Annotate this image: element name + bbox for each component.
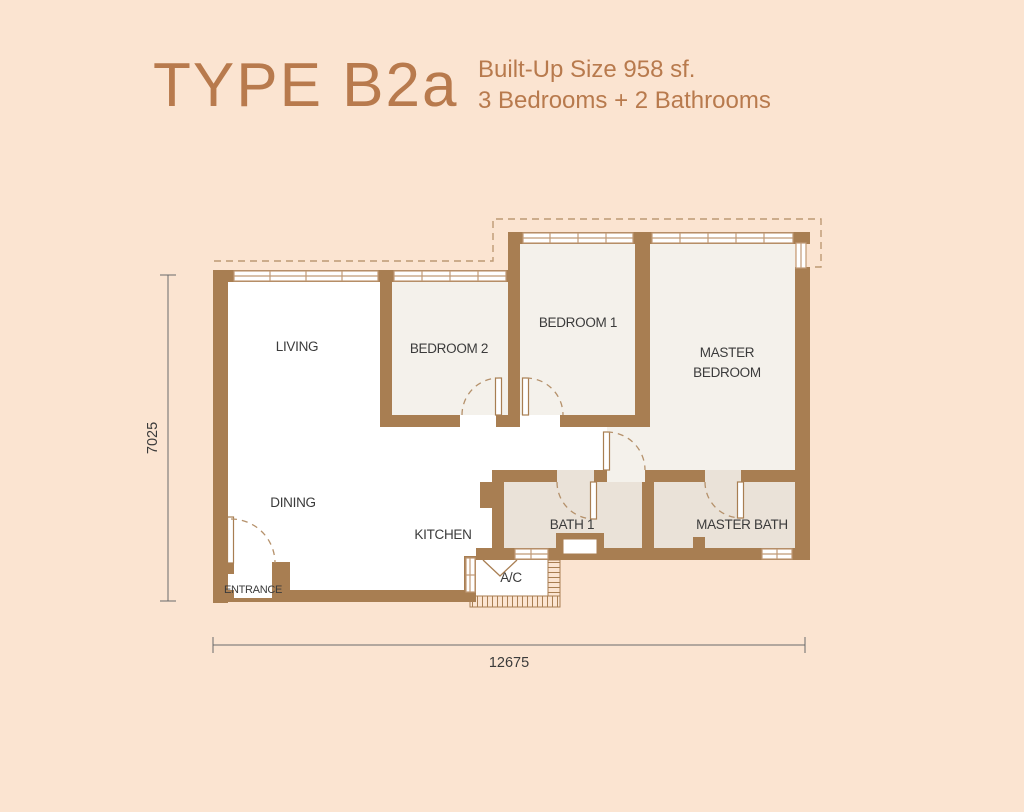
bath1-duct (563, 539, 597, 554)
builtup-size-text: Built-Up Size 958 sf. (478, 54, 771, 85)
floor-plan-svg: 7025 12675 LIVING DINING KITCHEN BEDROOM… (0, 0, 1024, 812)
bedroom2-window (394, 271, 506, 281)
room-label-bedroom2: BEDROOM 2 (410, 341, 488, 356)
ac-vent-window (515, 549, 548, 559)
master-bath-floor (654, 482, 795, 548)
bath1-door-leaf (591, 482, 597, 519)
page-subtitle: Built-Up Size 958 sf. 3 Bedrooms + 2 Bat… (478, 54, 771, 116)
bedrooms-bathrooms-text: 3 Bedrooms + 2 Bathrooms (478, 85, 771, 116)
kitchen-floor-lower (380, 556, 464, 590)
floor-plan-page: TYPE B2a Built-Up Size 958 sf. 3 Bedroom… (0, 0, 1024, 812)
ac-louvre-right (548, 560, 560, 596)
master-bedroom-door-leaf (604, 432, 610, 470)
room-label-living: LIVING (276, 339, 318, 354)
room-label-master-line2: BEDROOM (693, 365, 761, 380)
bedroom1-window (523, 233, 633, 243)
page-title: TYPE B2a (153, 50, 458, 121)
room-label-dining: DINING (270, 495, 315, 510)
room-label-entrance: ENTRANCE (224, 584, 282, 596)
room-label-bedroom1: BEDROOM 1 (539, 315, 617, 330)
width-dimension-label: 12675 (489, 655, 529, 671)
bedroom2-door-leaf (496, 378, 502, 415)
dimension-height: 7025 (145, 275, 176, 601)
master-bath-threshold (705, 470, 741, 482)
living-dining-floor (228, 282, 380, 590)
kitchen-window (466, 558, 475, 592)
bedroom1-door-leaf (523, 378, 529, 415)
entrance-door-leaf (228, 517, 234, 563)
room-label-kitchen: KITCHEN (414, 527, 471, 542)
master-bath-door-leaf (738, 482, 744, 518)
master-corner-window (796, 243, 806, 268)
master-bath-window (762, 549, 792, 559)
room-label-master-bath: MASTER BATH (696, 517, 788, 532)
master-bedroom-window (652, 233, 793, 243)
living-window (234, 271, 378, 281)
bath1-threshold (557, 470, 594, 482)
height-dimension-label: 7025 (145, 422, 161, 454)
ac-louvre-bottom (470, 596, 560, 607)
room-label-master-line1: MASTER (700, 345, 755, 360)
room-label-ac: A/C (500, 570, 522, 585)
room-label-bath1: BATH 1 (550, 517, 594, 532)
dimension-width: 12675 (213, 637, 805, 671)
